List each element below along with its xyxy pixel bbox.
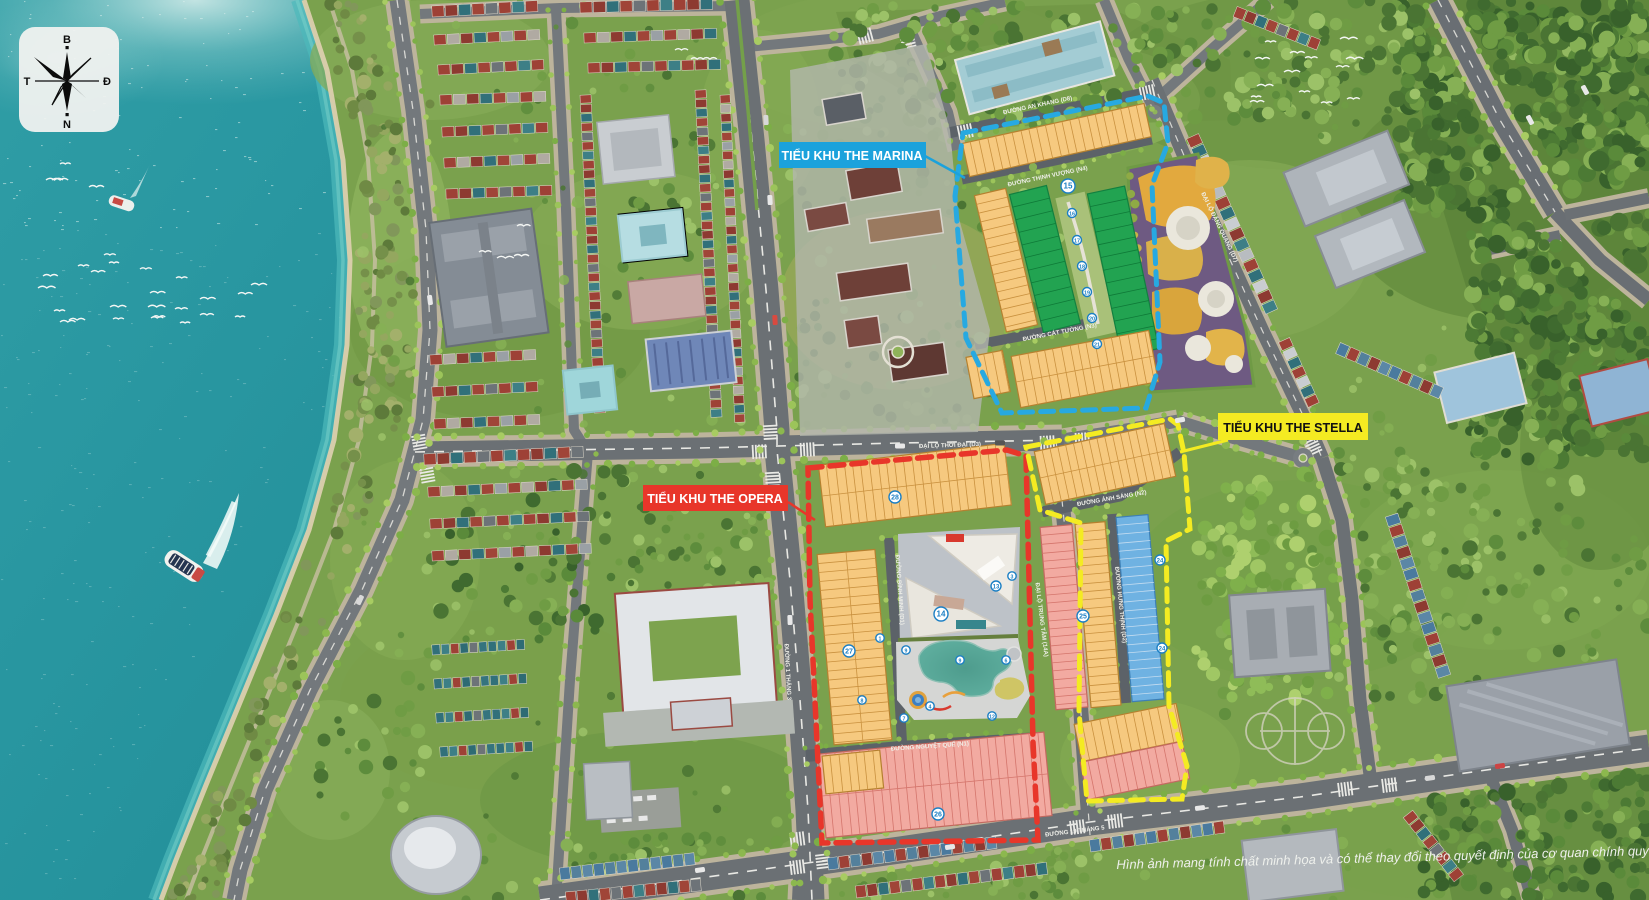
svg-text:7: 7: [903, 716, 906, 722]
svg-text:27: 27: [845, 648, 853, 655]
svg-text:13: 13: [993, 584, 1000, 590]
svg-text:T: T: [24, 76, 31, 88]
svg-text:TIỂU KHU THE OPERA: TIỂU KHU THE OPERA: [647, 491, 782, 506]
svg-text:TIỂU KHU THE MARINA: TIỂU KHU THE MARINA: [782, 148, 923, 163]
svg-text:26: 26: [934, 811, 942, 818]
svg-text:17: 17: [1074, 238, 1080, 244]
svg-text:25: 25: [1079, 613, 1087, 620]
svg-text:B: B: [63, 34, 71, 46]
svg-text:3: 3: [1011, 574, 1014, 580]
svg-text:28: 28: [891, 494, 899, 501]
svg-text:15: 15: [1064, 181, 1073, 190]
svg-text:9: 9: [959, 658, 962, 664]
svg-text:19: 19: [1084, 290, 1090, 296]
svg-text:N: N: [63, 119, 71, 131]
svg-text:21: 21: [1094, 342, 1100, 348]
svg-text:14: 14: [937, 609, 946, 618]
svg-text:8: 8: [861, 698, 864, 704]
svg-text:16: 16: [1069, 211, 1075, 217]
svg-text:12: 12: [989, 714, 995, 720]
svg-text:18: 18: [1079, 264, 1085, 270]
svg-text:24: 24: [1159, 646, 1166, 652]
svg-text:6: 6: [1005, 658, 1008, 664]
svg-text:9: 9: [905, 648, 908, 654]
svg-text:4: 4: [929, 704, 932, 710]
svg-text:1: 1: [879, 636, 882, 642]
svg-text:20: 20: [1089, 316, 1095, 322]
svg-text:TIỂU KHU THE STELLA: TIỂU KHU THE STELLA: [1223, 420, 1363, 435]
svg-text:24: 24: [1157, 558, 1164, 564]
svg-text:Đ: Đ: [103, 76, 111, 88]
